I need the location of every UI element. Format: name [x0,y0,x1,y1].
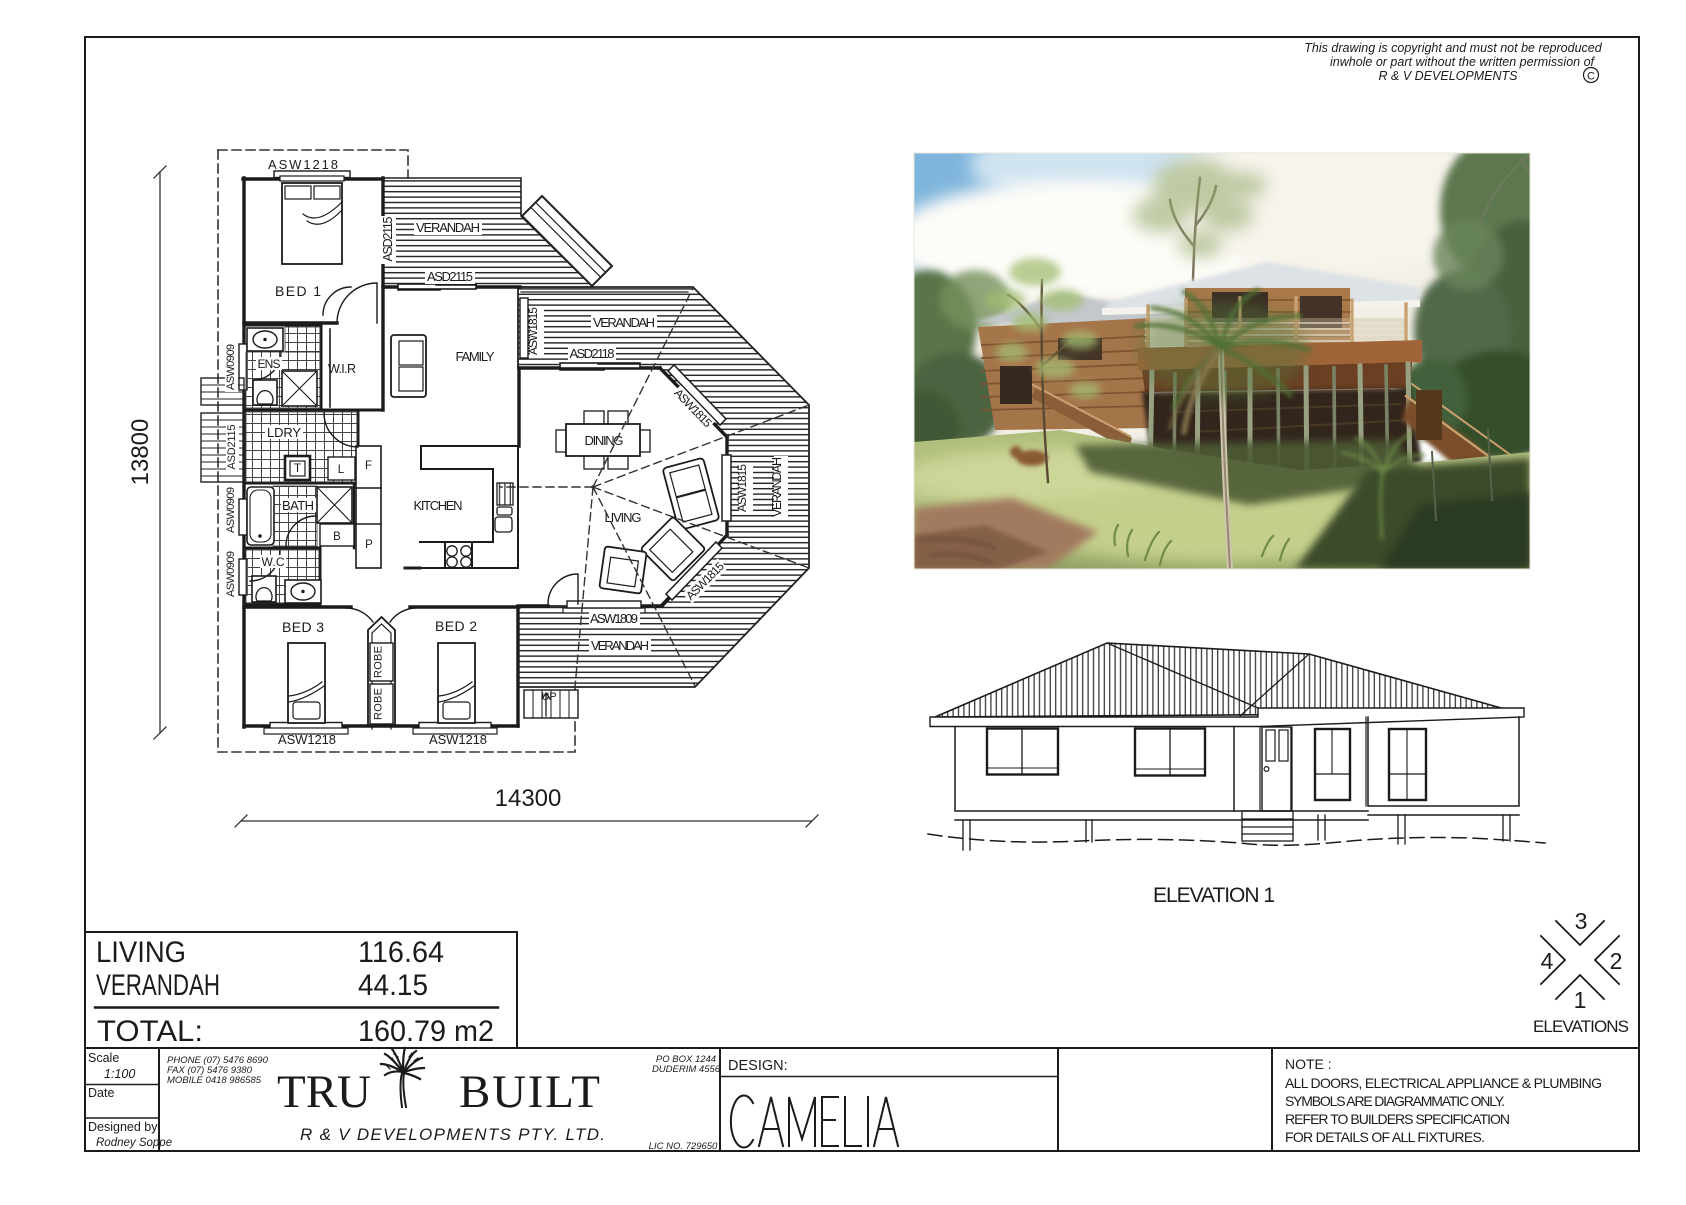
svg-text:160.79 m2: 160.79 m2 [358,1015,494,1048]
svg-text:P: P [365,539,373,551]
svg-text:R & V DEVELOPMENTS: R & V DEVELOPMENTS [1379,69,1519,83]
svg-text:Rodney Soppe: Rodney Soppe [96,1137,172,1149]
svg-text:This drawing is copyright and: This drawing is copyright and must not b… [1304,41,1602,55]
svg-text:ASW1218: ASW1218 [268,157,338,172]
svg-text:BUILT: BUILT [459,1066,603,1118]
svg-text:ELEVATION 1: ELEVATION 1 [1153,884,1275,907]
svg-text:Date: Date [88,1086,114,1100]
svg-text:REFER TO BUILDERS SPECIFICATI: REFER TO BUILDERS SPECIFICATION [1285,1111,1510,1127]
svg-text:ROBE: ROBE [373,688,385,720]
svg-text:inwhole or part without the wr: inwhole or part without the written perm… [1330,55,1596,69]
svg-text:VERANDAH: VERANDAH [770,457,784,517]
svg-text:ASD2115: ASD2115 [381,216,395,261]
svg-text:W.C: W.C [262,555,285,569]
svg-text:ASW1815: ASW1815 [526,307,540,355]
svg-text:R & V DEVELOPMENTS PTY. LTD.: R & V DEVELOPMENTS PTY. LTD. [300,1125,605,1144]
svg-text:ASD2118: ASD2118 [570,346,615,361]
svg-text:TRU: TRU [277,1066,374,1118]
svg-text:14300: 14300 [495,785,562,812]
svg-text:BED 3: BED 3 [282,619,324,635]
svg-text:Scale: Scale [88,1051,119,1065]
svg-text:ELEVATIONS: ELEVATIONS [1533,1017,1629,1036]
svg-text:T: T [294,463,301,475]
svg-text:ASW1809: ASW1809 [590,611,638,626]
svg-text:ASW0909: ASW0909 [225,551,237,597]
svg-text:ASW0909: ASW0909 [225,487,237,533]
svg-text:3: 3 [1575,908,1588,934]
svg-text:ASW1815: ASW1815 [735,464,749,512]
svg-text:VERANDAH: VERANDAH [593,315,655,330]
svg-text:TOTAL:: TOTAL: [97,1015,203,1048]
svg-text:FAMILY: FAMILY [456,349,495,364]
svg-text:B: B [333,531,341,543]
svg-text:ASD2115: ASD2115 [427,269,473,284]
svg-text:13800: 13800 [127,419,154,486]
svg-text:LIC NO. 729650: LIC NO. 729650 [649,1141,718,1152]
svg-text:ASD2115: ASD2115 [226,425,238,470]
svg-text:BED 1: BED 1 [275,283,321,299]
svg-text:W.I.R: W.I.R [328,362,356,376]
svg-text:DINING: DINING [585,433,624,448]
svg-text:ROBE: ROBE [373,646,385,678]
svg-text:KITCHEN: KITCHEN [414,498,463,513]
svg-text:L: L [338,464,345,476]
svg-text:4: 4 [1541,948,1554,974]
svg-text:ASW1218: ASW1218 [429,732,487,747]
svg-text:LDRY: LDRY [267,425,301,440]
svg-text:2: 2 [1610,948,1623,974]
svg-text:ENS: ENS [258,357,281,371]
svg-text:1: 1 [1574,987,1587,1013]
svg-text:FOR DETAILS OF ALL FIXTURES.: FOR DETAILS OF ALL FIXTURES. [1285,1129,1485,1145]
svg-text:ALL DOORS, ELECTRICAL APPLIANC: ALL DOORS, ELECTRICAL APPLIANCE & PLUMBI… [1285,1075,1602,1091]
svg-text:ASW1218: ASW1218 [278,732,336,747]
svg-text:LIVING: LIVING [605,510,642,525]
svg-text:DESIGN:: DESIGN: [728,1058,788,1074]
svg-text:Designed by: Designed by [88,1120,158,1134]
svg-text:BED 2: BED 2 [435,618,477,634]
svg-text:VERANDAH: VERANDAH [591,638,649,653]
svg-text:1:100: 1:100 [104,1067,135,1081]
svg-text:NOTE :: NOTE : [1285,1056,1332,1072]
svg-text:VERANDAH: VERANDAH [96,969,220,1002]
svg-text:C: C [1587,71,1595,83]
svg-text:VERANDAH: VERANDAH [416,220,480,235]
svg-text:SYMBOLS ARE DIAGRAMMATIC ONLY.: SYMBOLS ARE DIAGRAMMATIC ONLY. [1285,1093,1505,1109]
svg-text:UP: UP [541,691,556,703]
svg-text:44.15: 44.15 [358,969,428,1002]
svg-text:DUDERIM 4556: DUDERIM 4556 [652,1064,721,1075]
svg-text:BATH: BATH [282,498,314,513]
svg-text:ASW0909: ASW0909 [225,344,237,390]
svg-text:MOBILE 0418 986585: MOBILE 0418 986585 [167,1075,262,1086]
svg-text:F: F [365,460,372,472]
svg-text:LIVING: LIVING [96,936,186,969]
svg-text:116.64: 116.64 [358,936,444,969]
